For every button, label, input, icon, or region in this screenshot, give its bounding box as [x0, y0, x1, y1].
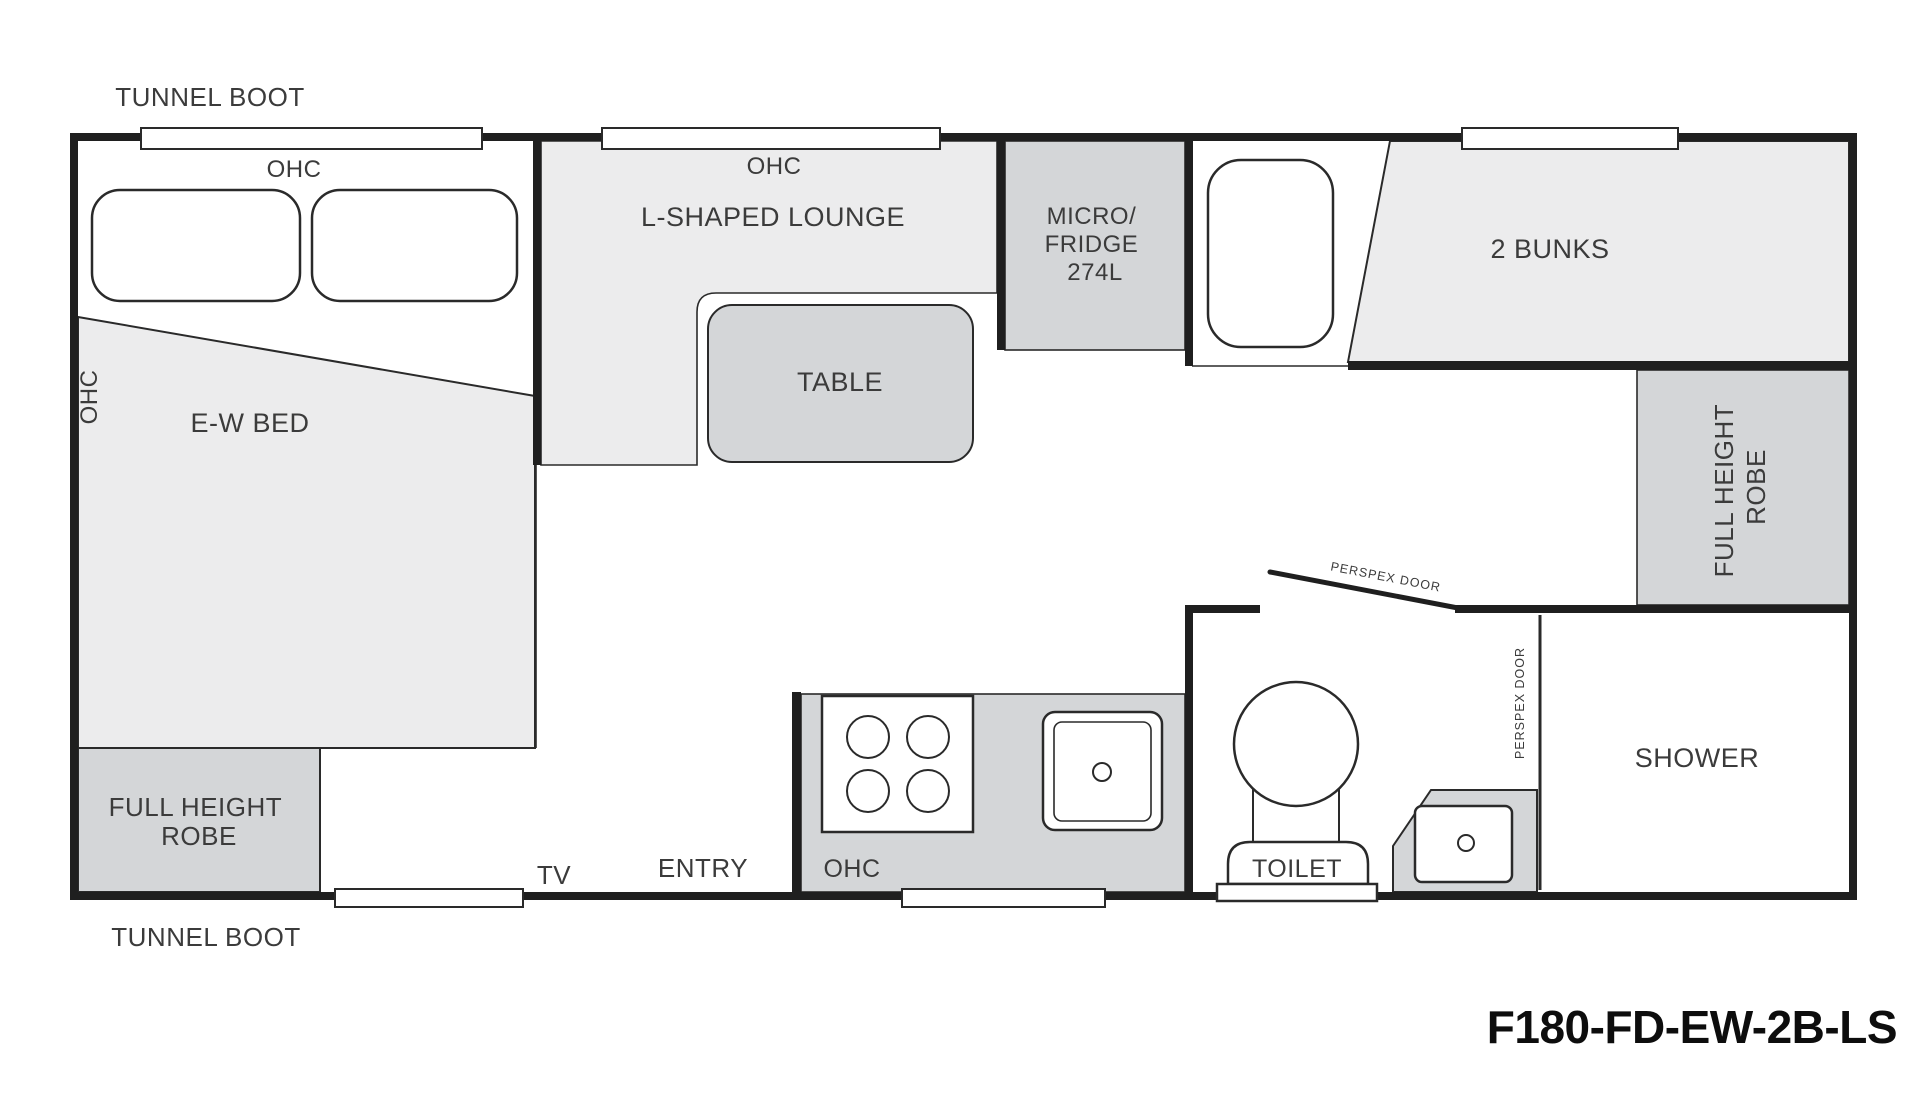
- label-perspex-swing-door: PERSPEX DOOR: [1329, 560, 1442, 595]
- caravan-floorplan: TUNNEL BOOT TUNNEL BOOT OHC OHC E-W BED …: [0, 0, 1920, 1097]
- bed-pillow-right: [312, 190, 517, 301]
- label-entry: ENTRY: [658, 853, 748, 883]
- window-front-bed: [141, 128, 482, 149]
- label-ohc-side: OHC: [76, 370, 103, 425]
- label-bunks: 2 BUNKS: [1490, 234, 1609, 264]
- cooktop-burner: [847, 716, 889, 758]
- label-ohc-lounge: OHC: [747, 153, 802, 180]
- window-tv-side: [335, 889, 523, 907]
- wall-bed-lounge: [533, 141, 541, 465]
- label-perspex-shower-door: PERSPEX DOOR: [1513, 647, 1527, 759]
- wall-kitchen-left: [792, 692, 801, 892]
- wall-left: [70, 133, 78, 900]
- wall-fridge-left: [997, 141, 1005, 350]
- front-hatch-door: [1208, 160, 1333, 347]
- label-table: TABLE: [797, 367, 883, 397]
- label-tv: TV: [537, 860, 571, 890]
- wall-right: [1849, 133, 1857, 900]
- wall-bathroom-top-a: [1185, 605, 1260, 613]
- label-shower: SHOWER: [1635, 743, 1760, 773]
- cooktop-burner: [907, 770, 949, 812]
- ew-bed-area: [78, 317, 535, 748]
- label-tunnel-boot-bottom: TUNNEL BOOT: [111, 922, 300, 952]
- kitchen-sink-drain-icon: [1093, 763, 1111, 781]
- toilet-bowl: [1234, 682, 1358, 806]
- window-kitchen: [902, 889, 1105, 907]
- window-bunks: [1462, 128, 1678, 149]
- label-ohc-bed: OHC: [267, 156, 322, 183]
- label-ew-bed: E-W BED: [190, 408, 309, 438]
- floorplan-page: TUNNEL BOOT TUNNEL BOOT OHC OHC E-W BED …: [0, 0, 1920, 1097]
- cooktop: [822, 696, 973, 832]
- wall-under-bunks: [1348, 361, 1853, 370]
- wall-fridge-right: [1185, 141, 1193, 366]
- wall-bathroom-left: [1185, 605, 1193, 892]
- vanity-sink-drain-icon: [1458, 835, 1474, 851]
- label-toilet: TOILET: [1252, 855, 1342, 883]
- bed-pillow-left: [92, 190, 300, 301]
- label-tunnel-boot-top: TUNNEL BOOT: [115, 82, 304, 112]
- model-code: F180-FD-EW-2B-LS: [1487, 1001, 1897, 1053]
- cooktop-burner: [847, 770, 889, 812]
- window-lounge: [602, 128, 940, 149]
- cooktop-burner: [907, 716, 949, 758]
- toilet-pedestal: [1217, 884, 1377, 901]
- label-lounge: L-SHAPED LOUNGE: [641, 202, 905, 232]
- label-ohc-kitchen: OHC: [823, 855, 880, 883]
- wall-bathroom-top-b: [1455, 605, 1853, 613]
